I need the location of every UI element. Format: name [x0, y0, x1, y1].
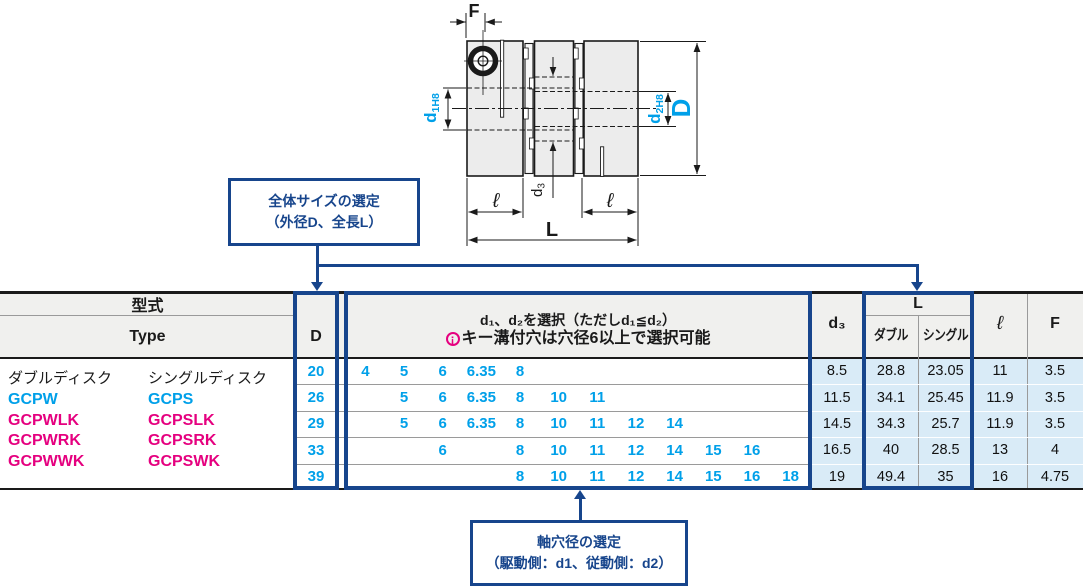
bore-option: 8	[501, 442, 540, 459]
bore-option: 6	[423, 415, 462, 432]
left-hub-slit	[501, 40, 504, 117]
cell-d3: 14.5	[810, 411, 864, 437]
header-l-single: シングル	[922, 315, 968, 355]
bore-option: 10	[539, 389, 578, 406]
header-l-group: L	[862, 293, 974, 315]
callout-size-line1: 全体サイズの選定	[268, 191, 380, 212]
bore-option: 15	[694, 442, 733, 459]
cell-l-double: 40	[864, 437, 918, 463]
bore-option: 18	[771, 468, 810, 485]
cell-f: 4	[1027, 437, 1083, 463]
cell-d1d2: 566.35810111214	[346, 411, 810, 437]
table-row: 39 810111214151618 19 49.4 35 16 4.75	[0, 464, 1083, 490]
cell-l-double: 34.3	[864, 411, 918, 437]
bore-option: 10	[539, 415, 578, 432]
header-d-column: D	[293, 325, 339, 349]
bore-option: 8	[501, 468, 540, 485]
bore-option: 10	[539, 468, 578, 485]
dim-label-d: D	[666, 99, 696, 118]
coupling-technical-drawing: F d1H8 d2H8 D d3 ℓ ℓ L	[424, 0, 716, 268]
bore-option: 15	[694, 468, 733, 485]
cell-ell: 11.9	[973, 384, 1027, 410]
bore-option: 5	[385, 389, 424, 406]
cell-l-double: 28.8	[864, 358, 918, 384]
dim-label-ell-right: ℓ	[606, 190, 615, 212]
cell-d1d2: 810111214151618	[346, 464, 810, 490]
cell-d3: 8.5	[810, 358, 864, 384]
header-d1d2-line2-text: キー溝付穴は穴径6以上で選択可能	[462, 329, 711, 348]
callout-bore-selection: 軸穴径の選定 （駆動側：d1、従動側：d2）	[470, 520, 688, 586]
arrow-to-d-column	[311, 282, 323, 291]
cell-l-single: 23.05	[918, 358, 973, 384]
bore-option: 6	[423, 442, 462, 459]
bore-option: 6	[423, 389, 462, 406]
bore-option: 11	[578, 442, 617, 459]
bore-option: 12	[617, 468, 656, 485]
table-row: 33 68101112141516 16.5 40 28.5 13 4	[0, 437, 1083, 463]
cell-d1d2: 566.3581011	[346, 384, 810, 410]
bore-option: 12	[617, 415, 656, 432]
cell-l-single: 25.45	[918, 384, 973, 410]
cell-d: 33	[293, 437, 339, 463]
table-row: 29 566.35810111214 14.5 34.3 25.7 11.9 3…	[0, 411, 1083, 437]
cell-ell: 11	[973, 358, 1027, 384]
bore-option: 11	[578, 389, 617, 406]
header-l-double: ダブル	[868, 315, 913, 355]
cell-d1d2: 4566.358	[346, 358, 810, 384]
dim-label-f: F	[469, 1, 480, 21]
callout-overall-size: 全体サイズの選定 （外径D、全長L）	[228, 178, 420, 246]
spec-table: 型式 Type D d₁、d₂を選択（ただしd₁≦d₂） ¡ キー溝付穴は穴径6…	[0, 291, 1083, 490]
dim-label-d3: d3	[529, 183, 548, 197]
bore-option: 6.35	[462, 389, 501, 406]
cell-d: 26	[293, 384, 339, 410]
bore-option: 10	[539, 442, 578, 459]
connector-line	[916, 264, 919, 284]
bore-option: 12	[617, 442, 656, 459]
arrow-to-l-column	[911, 282, 923, 291]
coupling-body	[464, 30, 638, 176]
bore-option: 8	[501, 415, 540, 432]
cell-d: 20	[293, 358, 339, 384]
bore-option: 5	[385, 363, 424, 380]
bore-option: 8	[501, 363, 540, 380]
bore-option: 11	[578, 468, 617, 485]
header-f-column: F	[1027, 293, 1083, 355]
cell-f: 3.5	[1027, 358, 1083, 384]
dim-label-ell-left: ℓ	[492, 190, 501, 212]
cell-d: 39	[293, 464, 339, 490]
header-model: 型式	[0, 294, 295, 314]
callout-size-line2: （外径D、全長L）	[266, 212, 383, 233]
cell-ell: 13	[973, 437, 1027, 463]
cell-f: 3.5	[1027, 411, 1083, 437]
table-row: 20 4566.358 8.5 28.8 23.05 11 3.5	[0, 358, 1083, 384]
connector-line	[316, 264, 919, 267]
bore-option: 5	[385, 415, 424, 432]
bore-option: 14	[655, 468, 694, 485]
catalog-page: { "drawing": { "labels": { "f": "F", "d"…	[0, 0, 1083, 588]
right-hub-slit	[601, 147, 604, 177]
bore-option: 14	[655, 442, 694, 459]
cell-d: 29	[293, 411, 339, 437]
cell-l-single: 35	[918, 464, 973, 490]
connector-line	[579, 498, 582, 521]
dim-label-l: L	[546, 219, 558, 241]
cell-f: 4.75	[1027, 464, 1083, 490]
cell-ell: 16	[973, 464, 1027, 490]
cell-l-double: 49.4	[864, 464, 918, 490]
callout-bore-line2: （駆動側：d1、従動側：d2）	[486, 553, 673, 574]
bore-option: 14	[655, 415, 694, 432]
bore-option: 6	[423, 363, 462, 380]
bore-option: 6.35	[462, 363, 501, 380]
bore-option: 6.35	[462, 415, 501, 432]
cell-d3: 11.5	[810, 384, 864, 410]
point-icon: ¡	[446, 332, 460, 346]
cell-d1d2: 68101112141516	[346, 437, 810, 463]
header-d1d2-line2: ¡ キー溝付穴は穴径6以上で選択可能	[446, 329, 711, 348]
cell-ell: 11.9	[973, 411, 1027, 437]
header-ell-column: ℓ	[973, 293, 1027, 355]
table-row: 26 566.3581011 11.5 34.1 25.45 11.9 3.5	[0, 384, 1083, 410]
cell-d3: 16.5	[810, 437, 864, 463]
header-d1d2-line1: d₁、d₂を選択（ただしd₁≦d₂）	[480, 312, 676, 329]
bore-option: 4	[346, 363, 385, 380]
cell-l-double: 34.1	[864, 384, 918, 410]
cell-l-single: 25.7	[918, 411, 973, 437]
bore-option: 8	[501, 389, 540, 406]
header-d1d2-column: d₁、d₂を選択（ただしd₁≦d₂） ¡ キー溝付穴は穴径6以上で選択可能	[344, 312, 812, 354]
dim-label-d1h8: d1H8	[424, 93, 442, 123]
cell-d3: 19	[810, 464, 864, 490]
cell-f: 3.5	[1027, 384, 1083, 410]
header-type: Type	[0, 319, 295, 355]
arrow-to-d1d2-columns	[574, 490, 586, 499]
bore-option: 11	[578, 415, 617, 432]
bore-option: 16	[733, 442, 772, 459]
bore-option: 16	[733, 468, 772, 485]
callout-bore-line1: 軸穴径の選定	[537, 532, 621, 553]
header-d3-column: d₃	[810, 293, 864, 355]
cell-l-single: 28.5	[918, 437, 973, 463]
